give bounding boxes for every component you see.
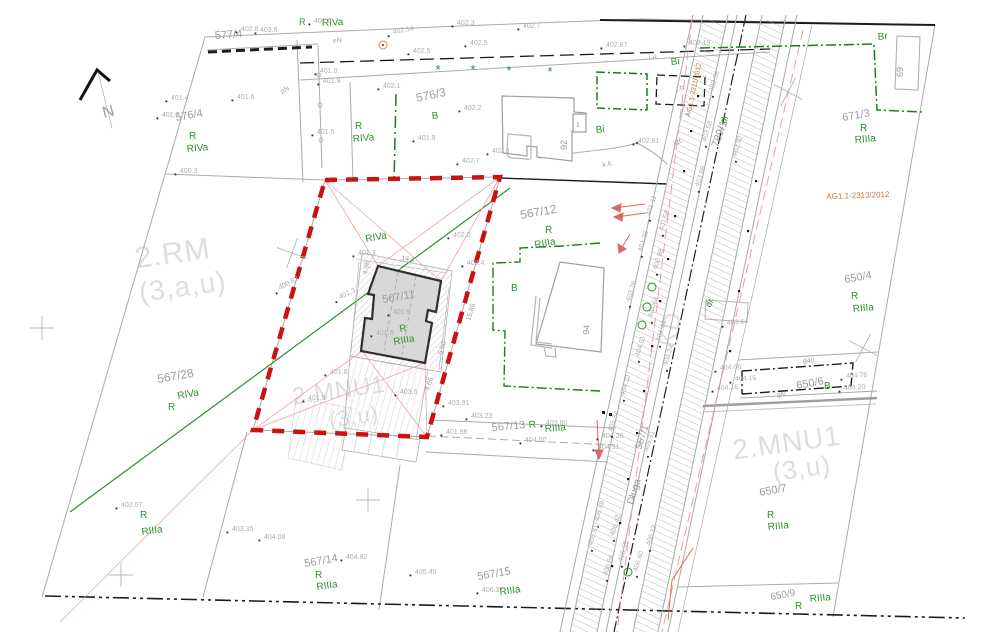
- map-label: AG1.1-2313/2012: [826, 190, 890, 201]
- map-label: 567/14: [303, 552, 338, 570]
- map-label: 404.76: [846, 372, 868, 380]
- map-label: 402.8: [241, 26, 259, 33]
- map-label: 403.35: [232, 526, 254, 533]
- survey-point: [712, 96, 714, 98]
- site-plan-svg: 2.RM(3,a,u)2.MNU1(3,u)2.MNU1(3,u)KD: [0, 0, 1001, 632]
- survey-point: [520, 443, 522, 445]
- map-label: 401.6: [237, 94, 255, 101]
- survey-point: [487, 154, 489, 156]
- north-arrow-icon: [80, 70, 110, 100]
- map-label: 403.76: [625, 280, 638, 303]
- survey-point: [601, 48, 603, 50]
- map-label: 404.16: [717, 384, 739, 392]
- map-label: RIVa: [365, 230, 389, 245]
- map-label: R: [315, 570, 322, 581]
- map-label: *: [435, 62, 440, 77]
- map-label: B: [511, 283, 518, 294]
- map-label: 402.19: [689, 40, 711, 47]
- map-label: 404.06: [720, 364, 742, 372]
- map-label: 402.4: [467, 260, 485, 267]
- grid-cross: [841, 326, 884, 369]
- survey-point: [839, 391, 841, 393]
- map-label: *: [547, 64, 552, 79]
- map-label: 406.59: [617, 540, 630, 563]
- map-label: 567/28: [156, 366, 195, 386]
- map-label: 403.5: [400, 389, 418, 396]
- map-label: R: [795, 601, 802, 612]
- survey-point: [633, 144, 635, 146]
- map-label: 401.98: [446, 429, 468, 436]
- survey-point: [705, 146, 707, 148]
- map-label: 406.60: [632, 550, 645, 573]
- map-label: 403.80: [546, 420, 568, 427]
- map-label: eN: [333, 37, 343, 45]
- survey-point: [518, 29, 520, 31]
- map-label: 402.0: [453, 232, 471, 239]
- map-label: 401.8: [330, 369, 348, 376]
- survey-point: [408, 54, 410, 56]
- map-label: 576/3: [415, 85, 448, 105]
- survey-point: [459, 111, 461, 113]
- map-label: 402.81: [638, 138, 660, 145]
- map-label: 650/7: [758, 482, 787, 499]
- map-label: N: [101, 102, 117, 121]
- survey-point: [378, 89, 380, 91]
- map-label: pN: [280, 85, 291, 96]
- map-label: 403.68: [694, 165, 707, 188]
- map-label: *: [470, 62, 475, 77]
- map-label: 402.5: [470, 40, 488, 47]
- building-567-12: [531, 262, 604, 357]
- map-label: RIIIa: [854, 133, 876, 146]
- map-label: 404.20: [844, 384, 866, 392]
- map-label: 404.82: [346, 554, 368, 561]
- map-label: k.k.: [602, 160, 614, 169]
- map-label: RIIIa: [316, 579, 339, 593]
- map-label: 401.3: [162, 112, 180, 119]
- survey-point: [593, 450, 595, 452]
- map-label: R: [140, 510, 147, 521]
- survey-point: [309, 24, 311, 26]
- map-label: 577/4: [214, 28, 242, 42]
- map-label: 69: [895, 67, 905, 77]
- survey-point: [684, 46, 686, 48]
- map-label: R: [860, 123, 867, 134]
- map-label: 401.9: [393, 309, 411, 316]
- survey-point: [335, 301, 337, 303]
- survey-point: [457, 164, 459, 166]
- map-label: RIIIa: [852, 302, 874, 315]
- cadastral-site-plan: 2.RM(3,a,u)2.MNU1(3,u)2.MNU1(3,u)KD: [0, 0, 1001, 632]
- survey-point: [636, 576, 638, 578]
- map-label: j.b.: [675, 84, 687, 93]
- map-label: 400.3: [180, 168, 198, 175]
- survey-point: [236, 32, 238, 34]
- map-label: R: [851, 291, 858, 302]
- map-label: 403.23: [471, 413, 493, 420]
- survey-point: [452, 26, 454, 28]
- survey-point: [462, 266, 464, 268]
- map-label: 400.87: [278, 275, 300, 291]
- map-label: 1: [576, 122, 580, 129]
- map-label: 402.3: [457, 20, 475, 27]
- map-label: RIIIa: [767, 520, 789, 533]
- survey-point: [465, 46, 467, 48]
- survey-point: [312, 135, 314, 137]
- survey-point: [116, 508, 118, 510]
- survey-point: [157, 118, 159, 120]
- map-label: R: [528, 419, 536, 431]
- map-label: 15.86: [465, 303, 477, 322]
- map-label: R: [168, 402, 175, 413]
- survey-point: [413, 141, 415, 143]
- map-label: 401.9: [418, 135, 436, 142]
- survey-point: [303, 401, 305, 403]
- map-label: R: [767, 510, 774, 521]
- map-label: j.a.: [647, 52, 658, 61]
- survey-point: [466, 419, 468, 421]
- map-label: 671/3: [841, 107, 870, 124]
- map-label: R: [355, 121, 362, 132]
- map-label: 401.9: [320, 68, 338, 75]
- map-label: 401.6: [376, 330, 394, 337]
- map-label: gN: [777, 392, 786, 399]
- building-576-3: [502, 96, 586, 161]
- map-label: R: [545, 225, 552, 236]
- map-label: Bi: [595, 124, 605, 136]
- survey-point: [841, 379, 843, 381]
- grid-cross: [30, 316, 54, 340]
- survey-point: [371, 336, 373, 338]
- map-label: 650/6: [795, 375, 824, 392]
- map-label: 401.5: [317, 129, 335, 136]
- survey-point: [541, 426, 543, 428]
- map-label: 650/9: [770, 588, 797, 603]
- map-label: 567/12: [519, 202, 558, 222]
- survey-point: [712, 391, 714, 393]
- map-label: 401.36: [637, 230, 650, 253]
- map-label: 405.49: [415, 569, 437, 576]
- survey-point: [315, 74, 317, 76]
- map-label: *: [506, 63, 511, 78]
- survey-point: [395, 395, 397, 397]
- map-label: 404.31: [598, 444, 620, 451]
- grid-cross: [356, 488, 380, 512]
- grid-cross: [109, 563, 133, 587]
- map-label: 402.7: [523, 23, 541, 30]
- survey-point: [441, 435, 443, 437]
- map-label: 402.1: [383, 83, 401, 90]
- survey-point: [353, 256, 355, 258]
- map-label: Bi: [670, 56, 680, 68]
- map-label: 401.8: [314, 18, 332, 25]
- survey-point: [597, 439, 599, 441]
- map-label: 401.3: [358, 250, 376, 257]
- hatch-areas: [288, 356, 428, 470]
- map-label: RIVa: [352, 132, 375, 145]
- survey-point: [410, 575, 412, 577]
- survey-point: [388, 35, 390, 37]
- map-label: 402.14: [392, 25, 414, 36]
- map-label: 92: [559, 140, 569, 150]
- survey-point: [715, 371, 717, 373]
- map-label: R: [189, 131, 196, 142]
- map-label: RIIIa: [141, 524, 164, 538]
- map-label: 404.15: [735, 375, 757, 383]
- map-label: R: [299, 17, 306, 27]
- survey-point: [227, 532, 229, 534]
- map-label: 401.8: [323, 78, 341, 85]
- map-label: 401.11: [645, 194, 658, 216]
- survey-point: [232, 100, 234, 102]
- map-label: B: [824, 381, 831, 392]
- map-label: 404.08: [264, 534, 286, 541]
- map-label: 567/13: [491, 419, 526, 434]
- survey-point: [325, 375, 327, 377]
- map-label: 401.9: [308, 395, 326, 402]
- survey-point: [388, 315, 390, 317]
- map-label: 402.87: [606, 42, 628, 49]
- map-label: 403.6: [260, 27, 278, 34]
- map-label: 404.00: [525, 437, 547, 444]
- map-label: 401.4: [171, 95, 189, 102]
- survey-point: [318, 84, 320, 86]
- survey-point: [275, 292, 277, 294]
- shed-69-outline: [895, 36, 920, 90]
- map-label: B: [431, 110, 439, 122]
- survey-point: [647, 456, 649, 458]
- survey-point: [341, 560, 343, 562]
- map-label: RIIIa: [809, 592, 831, 605]
- grid-cross: [271, 232, 312, 273]
- map-label: 401.3: [338, 287, 357, 301]
- map-label: 94: [581, 324, 592, 335]
- map-label: RIVa: [177, 387, 201, 402]
- map-label: 402.3: [492, 148, 510, 155]
- survey-point: [477, 593, 479, 595]
- survey-point: [666, 370, 668, 372]
- planned-area-hatch: [344, 356, 428, 440]
- map-label: 402.5: [413, 48, 431, 55]
- map-label: 402.7: [462, 158, 480, 165]
- survey-point: [448, 238, 450, 240]
- survey-point: [166, 101, 168, 103]
- survey-point: [443, 406, 445, 408]
- map-label: 650/4: [843, 269, 872, 286]
- survey-point: [175, 174, 177, 176]
- survey-point: [259, 540, 261, 542]
- map-label: 402.07: [121, 502, 143, 509]
- survey-point: [621, 566, 623, 568]
- map-label: 403.91: [448, 400, 470, 407]
- zone-labels-layer: 2.RM(3,a,u)2.MNU1(3,u)2.MNU1(3,u)KD: [133, 232, 843, 487]
- map-label: Br: [877, 31, 889, 43]
- parcel-lines: [42, 19, 935, 617]
- map-label: 406.37: [482, 587, 504, 594]
- map-label: g40: [803, 357, 815, 365]
- map-label: 567/15: [476, 565, 511, 583]
- survey-point: [722, 326, 724, 328]
- point-symbols: [317, 41, 638, 144]
- map-label: RIVa: [186, 142, 209, 155]
- map-label: RIIIa: [534, 236, 557, 251]
- map-label: 402.2: [464, 105, 482, 112]
